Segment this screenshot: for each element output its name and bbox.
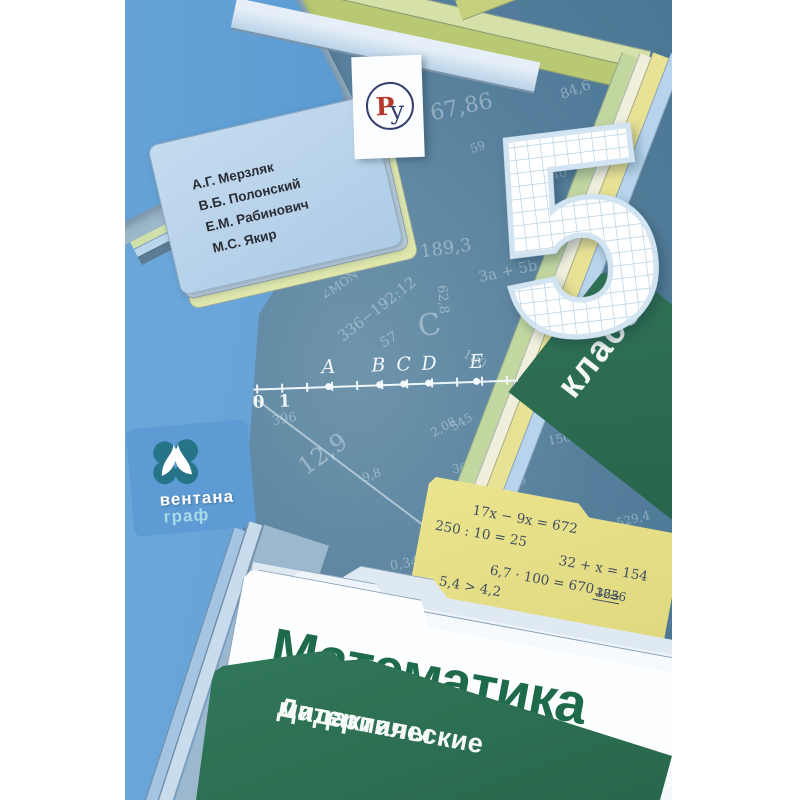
background-math-text: C [415,306,444,344]
unit-label: 1 [278,391,291,411]
background-math-text: 189,3 [419,235,473,263]
grade-number: 5 [480,76,672,389]
point-label: A [321,356,335,378]
publisher-name-line2: граф [163,505,210,527]
background-math-text: 62,8 [434,284,451,314]
publisher-logo-tab: Р у [351,55,425,159]
book-cover-photo: 67,8684,6240178,2424231189,33a + 5b∠ABC4… [0,0,800,800]
point-label: E [469,351,484,373]
point-label: C [396,353,411,375]
ru-logo-letter-u: у [389,87,405,124]
fraction-equation: 1236 − 536 = [592,586,621,607]
book-cover: 67,8684,6240178,2424231189,33a + 5b∠ABC4… [125,0,672,800]
background-math-text: 336−192:12 [334,273,419,345]
background-math-text: 545 [448,410,475,434]
background-math-text: 57 [377,329,400,352]
ru-logo-icon: Р у [365,81,415,131]
origin-label: 0 [252,392,265,412]
point-label: D [421,352,437,375]
background-math-text: 2,08 [428,414,458,439]
ventana-flower-icon [150,436,203,489]
number-line-figure: A B C D E 0 1 [249,351,527,411]
point-label: B [371,354,386,376]
grade-number-figure: 5 [456,76,672,389]
